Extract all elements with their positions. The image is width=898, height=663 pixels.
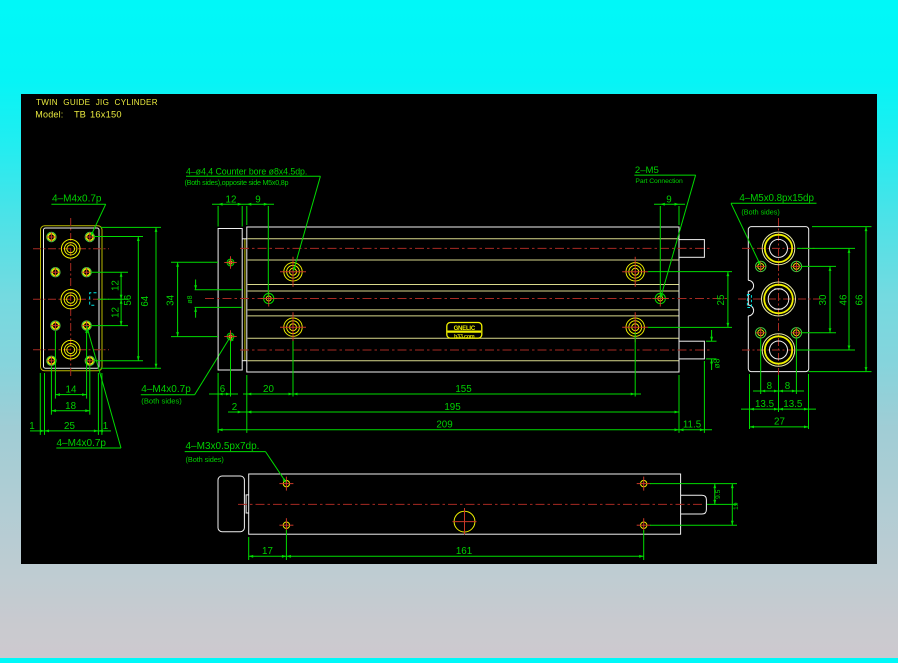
svg-text:161: 161 (456, 546, 472, 557)
svg-text:1: 1 (29, 421, 34, 432)
svg-text:Part Connection: Part Connection (635, 178, 683, 185)
svg-text:16x150: 16x150 (90, 110, 122, 120)
svg-text:b33.com: b33.com (454, 334, 475, 340)
svg-text:2–M5: 2–M5 (635, 165, 659, 176)
svg-text:4–M4x0.7p: 4–M4x0.7p (52, 194, 102, 205)
svg-text:ø8: ø8 (187, 295, 194, 303)
svg-text:56: 56 (123, 294, 134, 305)
svg-text:9: 9 (666, 195, 671, 206)
svg-text:TB: TB (74, 110, 86, 120)
svg-text:12: 12 (226, 195, 237, 206)
svg-text:8: 8 (785, 381, 791, 392)
svg-text:(Both sides): (Both sides) (141, 396, 182, 405)
svg-text:155: 155 (455, 384, 472, 395)
svg-text:46: 46 (839, 294, 850, 305)
svg-text:GNELIC: GNELIC (454, 326, 476, 332)
svg-text:19: 19 (733, 502, 740, 510)
svg-text:9: 9 (255, 195, 260, 206)
svg-text:34: 34 (166, 294, 177, 305)
svg-text:12: 12 (111, 307, 122, 318)
svg-text:13.5: 13.5 (783, 399, 803, 410)
svg-text:4–M4x0.7p: 4–M4x0.7p (57, 438, 107, 449)
svg-text:18: 18 (65, 401, 76, 412)
svg-text:4–M3x0.5px7dp.: 4–M3x0.5px7dp. (186, 441, 260, 452)
svg-text:6: 6 (220, 384, 226, 395)
svg-text:Model:: Model: (35, 110, 63, 120)
svg-text:209: 209 (436, 420, 452, 431)
svg-text:64: 64 (140, 295, 151, 306)
svg-text:4–ø4,4 Counter bore ø8x4.5dp.: 4–ø4,4 Counter bore ø8x4.5dp. (186, 166, 307, 176)
svg-text:9.5: 9.5 (715, 489, 722, 499)
svg-text:13.5: 13.5 (755, 399, 775, 410)
svg-text:25: 25 (64, 421, 75, 432)
svg-text:(Both sides): (Both sides) (741, 207, 779, 216)
svg-text:66: 66 (855, 294, 866, 305)
svg-text:(Both sides): (Both sides) (186, 455, 224, 464)
svg-text:12: 12 (111, 280, 122, 291)
svg-text:8: 8 (767, 381, 773, 392)
svg-text:195: 195 (444, 402, 461, 413)
svg-text:25: 25 (716, 294, 727, 305)
svg-text:4–M5x0.8px15dp: 4–M5x0.8px15dp (739, 193, 814, 204)
svg-text:14: 14 (66, 385, 77, 396)
svg-text:ø8: ø8 (712, 358, 722, 368)
svg-text:TWIN GUIDE JIG CYLINDER: TWIN GUIDE JIG CYLINDER (36, 98, 158, 107)
svg-text:4–M4x0.7p: 4–M4x0.7p (141, 384, 191, 395)
svg-text:27: 27 (774, 417, 785, 428)
svg-text:30: 30 (818, 294, 829, 305)
svg-text:11.5: 11.5 (683, 420, 702, 431)
svg-text:20: 20 (263, 384, 274, 395)
svg-text:17: 17 (262, 546, 273, 557)
svg-text:2: 2 (232, 402, 237, 413)
svg-text:(Both sides),opposite side M5x: (Both sides),opposite side M5x0,8p (185, 178, 289, 187)
svg-text:1: 1 (103, 421, 108, 432)
